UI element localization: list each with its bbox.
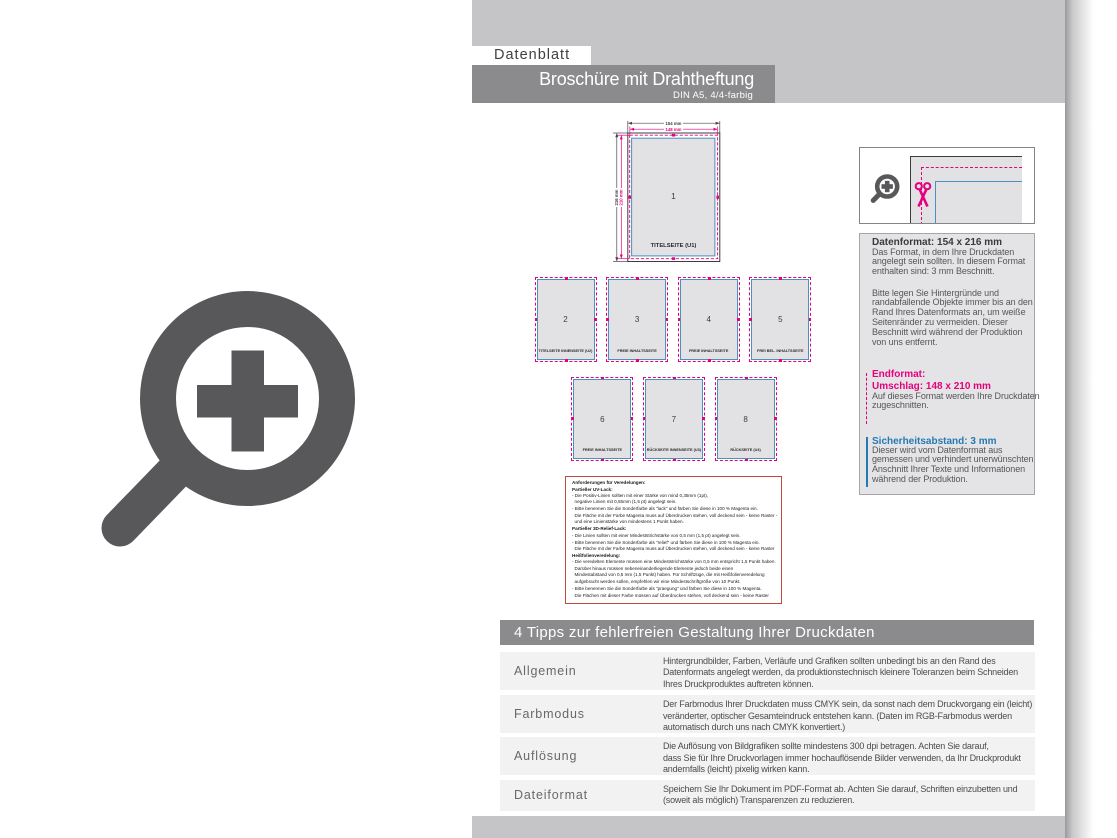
svg-text:154 mm: 154 mm — [665, 121, 681, 126]
svg-text:210 mm: 210 mm — [619, 189, 624, 205]
svg-text:TITELSEITE (U1): TITELSEITE (U1) — [651, 243, 697, 249]
svg-text:1: 1 — [671, 191, 676, 201]
svg-text:148 mm: 148 mm — [665, 127, 681, 132]
